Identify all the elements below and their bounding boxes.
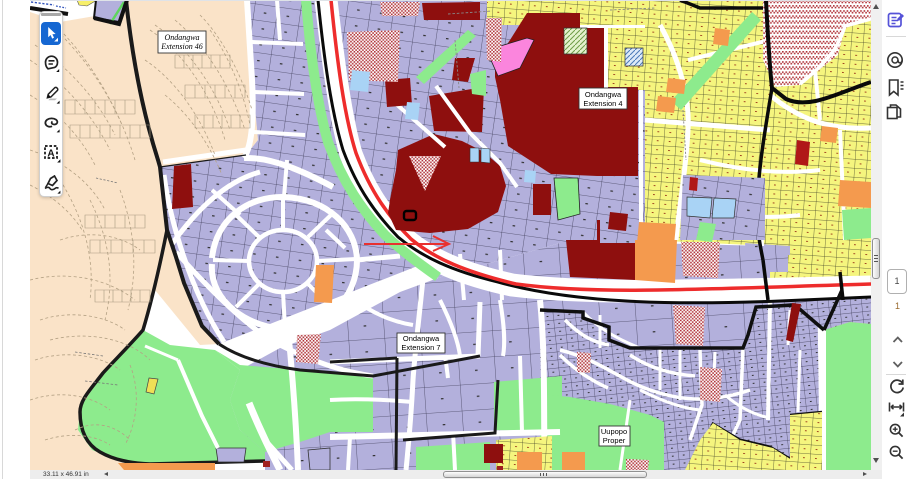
svg-text:A: A <box>47 149 54 160</box>
svg-text:Extension 7: Extension 7 <box>401 343 440 352</box>
svg-text:Extension 46: Extension 46 <box>160 42 203 51</box>
svg-text:Extension 4: Extension 4 <box>583 99 622 108</box>
svg-text:Ondangwa: Ondangwa <box>403 334 440 343</box>
svg-text:Ondangwa: Ondangwa <box>585 90 622 99</box>
svg-text:Ondangwa: Ondangwa <box>164 33 199 42</box>
svg-text:Uupopo: Uupopo <box>601 427 627 436</box>
svg-text:Proper: Proper <box>603 436 626 445</box>
